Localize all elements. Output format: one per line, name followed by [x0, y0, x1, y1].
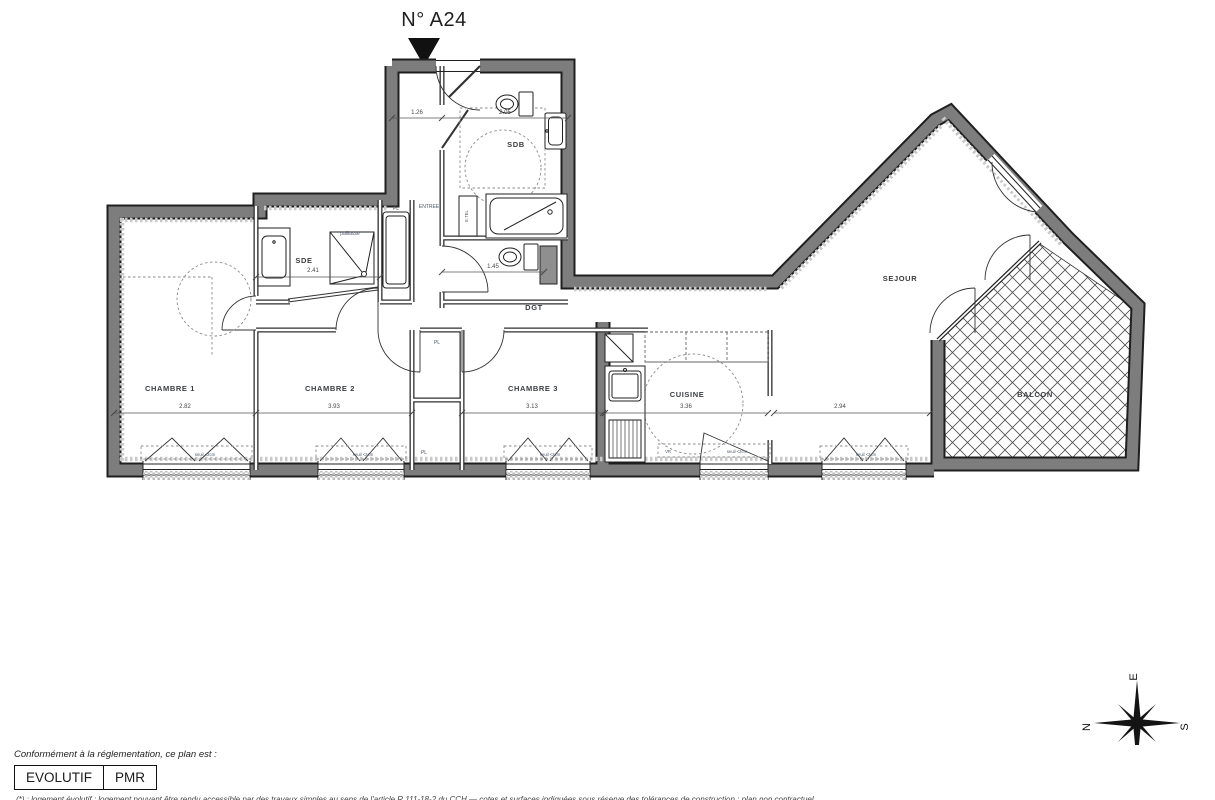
- dim-sejour: 2.94: [834, 404, 846, 410]
- legend-pmr: PMR: [103, 766, 156, 789]
- sill-label: seuil <2cm: [540, 452, 561, 457]
- closet-label-pl2: PL: [434, 340, 440, 346]
- appliance-slot: [609, 420, 641, 458]
- room-label-sdb: SDB: [507, 140, 525, 149]
- wc-bowl: [499, 248, 521, 266]
- floor-plan-page: N° A24 seuil <2cm: [0, 0, 1215, 800]
- room-label-balcon: BALCON: [1017, 390, 1053, 399]
- toilet-tank: [519, 92, 533, 116]
- room-label-dgt: DGT: [525, 303, 543, 312]
- closet-door: [383, 212, 409, 288]
- label-etel: E.TEL: [464, 210, 469, 222]
- duct: [540, 246, 557, 284]
- compass-rose: N E S O: [1081, 673, 1191, 745]
- compass-ns-spike: [1133, 680, 1141, 745]
- footnote-clipped: (*) : logement évolutif : logement pouva…: [16, 795, 1206, 800]
- room-label-sde: SDE: [295, 256, 312, 265]
- floor-plan-drawing: N° A24 seuil <2cm: [0, 0, 1215, 745]
- dim-cuisine: 3.36: [680, 404, 692, 410]
- room-label-entree: ENTREE: [419, 204, 440, 210]
- sejour-window-upper: [988, 156, 1040, 212]
- sill-label: seuil <2cm: [353, 452, 374, 457]
- dim-wc: 1.45: [487, 264, 499, 270]
- legend-caption: Conformément à la réglementation, ce pla…: [14, 749, 217, 760]
- sde-fixtures: [258, 212, 409, 288]
- legend-table: EVOLUTIF PMR: [14, 765, 157, 790]
- shutter-label: VR: [665, 449, 671, 454]
- dim-ch2: 3.93: [328, 404, 340, 410]
- label-paillasse: paillasse: [340, 231, 360, 237]
- dim-entree: 1.26: [411, 110, 423, 116]
- room-label-cuisine: CUISINE: [670, 390, 705, 399]
- legend-evolutif: EVOLUTIF: [15, 766, 103, 789]
- bathtub: [486, 194, 567, 238]
- compass-south: S: [1179, 723, 1191, 730]
- plan-title: N° A24: [401, 9, 466, 66]
- closet-label-pl3: PL: [421, 450, 427, 456]
- dimension-lines: 1.26 2.05 2.41 1.45 2.82 3.93 3.13 3.36 …: [111, 110, 933, 416]
- sill-label: seuil <2cm: [727, 449, 748, 454]
- room-label-chambre3: CHAMBRE 3: [508, 384, 558, 393]
- closet-label-pl1: PL: [393, 206, 399, 212]
- dim-ch1: 2.82: [179, 404, 191, 410]
- room-label-sejour: SEJOUR: [883, 274, 917, 283]
- sill-label: seuil <2cm: [195, 452, 216, 457]
- dim-sdb: 2.05: [499, 110, 511, 116]
- sill-label: seuil <2cm: [856, 452, 877, 457]
- room-label-chambre1: CHAMBRE 1: [145, 384, 195, 393]
- compass-east: E: [1128, 673, 1140, 680]
- dim-ch3: 3.13: [526, 404, 538, 410]
- insulation-hatch: [120, 118, 1061, 462]
- unit-number: N° A24: [401, 9, 466, 31]
- wc-tank: [524, 244, 538, 270]
- compass-north: N: [1081, 723, 1093, 731]
- dim-sde: 2.41: [307, 268, 319, 274]
- upper-cabinets: [645, 332, 768, 362]
- room-label-chambre2: CHAMBRE 2: [305, 384, 355, 393]
